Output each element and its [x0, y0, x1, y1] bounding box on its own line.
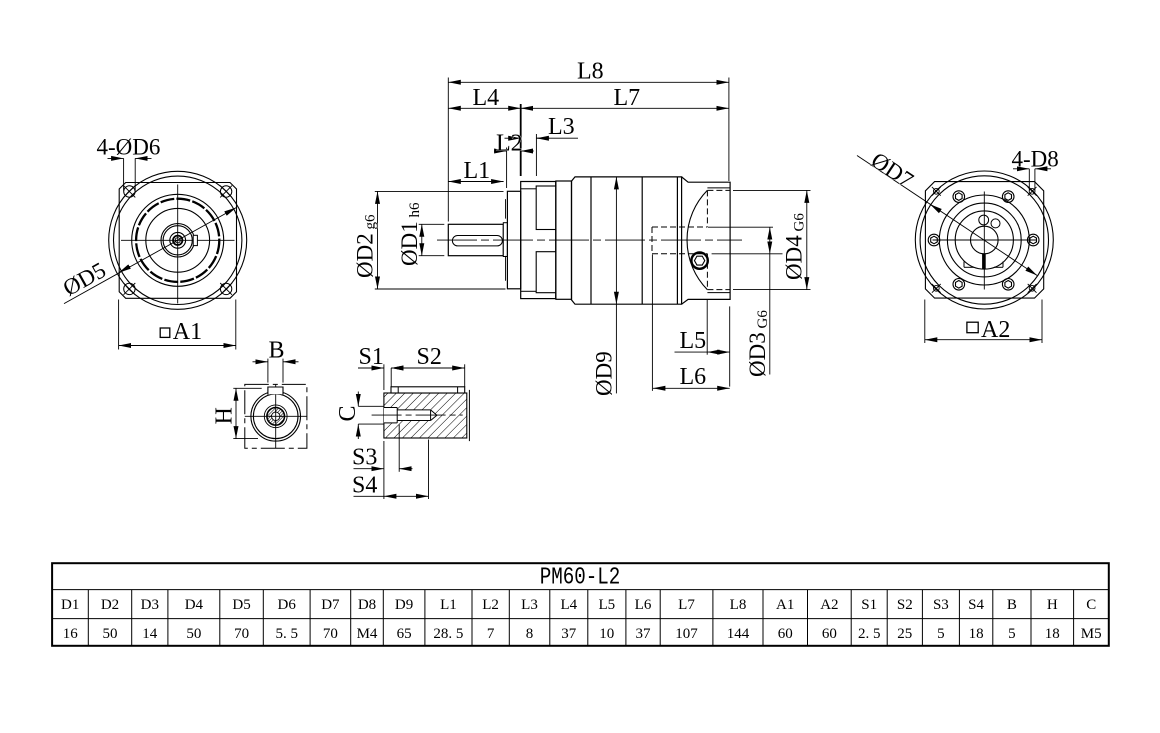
svg-text:B: B: [269, 338, 285, 364]
svg-text:4-ØD6: 4-ØD6: [97, 135, 161, 160]
svg-text:8: 8: [526, 626, 534, 642]
svg-text:S2: S2: [897, 597, 913, 613]
svg-text:ØD9: ØD9: [592, 351, 617, 396]
svg-text:50: 50: [186, 626, 201, 642]
svg-text:25: 25: [897, 626, 912, 642]
svg-text:D8: D8: [358, 597, 376, 613]
svg-text:PM60-L2: PM60-L2: [540, 564, 621, 592]
svg-text:H: H: [212, 407, 238, 424]
svg-text:L7: L7: [678, 597, 695, 613]
svg-text:S3: S3: [352, 445, 377, 471]
svg-text:L4: L4: [560, 597, 577, 613]
svg-text:A1: A1: [173, 319, 202, 345]
svg-text:18: 18: [969, 626, 984, 642]
svg-text:60: 60: [778, 626, 793, 642]
svg-text:D7: D7: [321, 597, 340, 613]
svg-text:D4: D4: [185, 597, 204, 613]
svg-text:4-D8: 4-D8: [1012, 147, 1059, 172]
svg-text:28. 5: 28. 5: [433, 626, 463, 642]
svg-text:L7: L7: [614, 85, 641, 111]
svg-text:D6: D6: [278, 597, 297, 613]
svg-text:M5: M5: [1081, 626, 1102, 642]
svg-text:L3: L3: [521, 597, 538, 613]
svg-text:14: 14: [142, 626, 158, 642]
svg-text:L3: L3: [548, 114, 575, 140]
svg-text:50: 50: [103, 626, 118, 642]
svg-text:L2: L2: [496, 130, 523, 156]
svg-text:144: 144: [727, 626, 750, 642]
svg-text:70: 70: [323, 626, 338, 642]
svg-text:M4: M4: [357, 626, 378, 642]
svg-text:5: 5: [937, 626, 945, 642]
svg-text:L5: L5: [598, 597, 615, 613]
svg-text:L6: L6: [635, 597, 652, 613]
svg-text:18: 18: [1045, 626, 1060, 642]
svg-text:L2: L2: [482, 597, 499, 613]
svg-text:60: 60: [822, 626, 837, 642]
svg-text:C: C: [1086, 597, 1096, 613]
svg-text:L8: L8: [730, 597, 747, 613]
svg-text:S1: S1: [861, 597, 877, 613]
svg-text:S2: S2: [417, 344, 442, 370]
svg-text:65: 65: [397, 626, 412, 642]
svg-text:C: C: [335, 405, 361, 421]
svg-text:D2: D2: [101, 597, 119, 613]
svg-text:D5: D5: [232, 597, 250, 613]
svg-text:10: 10: [599, 626, 614, 642]
svg-text:7: 7: [487, 626, 495, 642]
svg-text:A2: A2: [981, 317, 1010, 343]
svg-text:37: 37: [561, 626, 577, 642]
svg-text:H: H: [1047, 597, 1058, 613]
svg-text:L6: L6: [680, 364, 707, 390]
svg-text:70: 70: [234, 626, 249, 642]
svg-text:A2: A2: [820, 597, 838, 613]
svg-text:5: 5: [1008, 626, 1016, 642]
svg-text:2. 5: 2. 5: [858, 626, 881, 642]
svg-text:A1: A1: [776, 597, 794, 613]
svg-text:37: 37: [636, 626, 652, 642]
svg-text:L1: L1: [464, 158, 491, 184]
svg-text:S1: S1: [359, 344, 384, 370]
svg-text:L4: L4: [473, 85, 500, 111]
svg-text:16: 16: [63, 626, 79, 642]
svg-text:D9: D9: [395, 597, 413, 613]
svg-text:D3: D3: [141, 597, 159, 613]
svg-text:S4: S4: [968, 597, 984, 613]
svg-text:S4: S4: [352, 472, 377, 498]
svg-text:L1: L1: [440, 597, 457, 613]
svg-text:L8: L8: [577, 59, 604, 85]
svg-text:B: B: [1007, 597, 1017, 613]
svg-text:D1: D1: [61, 597, 79, 613]
svg-text:L5: L5: [680, 328, 707, 354]
svg-text:5. 5: 5. 5: [275, 626, 298, 642]
svg-text:107: 107: [675, 626, 698, 642]
svg-text:S3: S3: [933, 597, 949, 613]
